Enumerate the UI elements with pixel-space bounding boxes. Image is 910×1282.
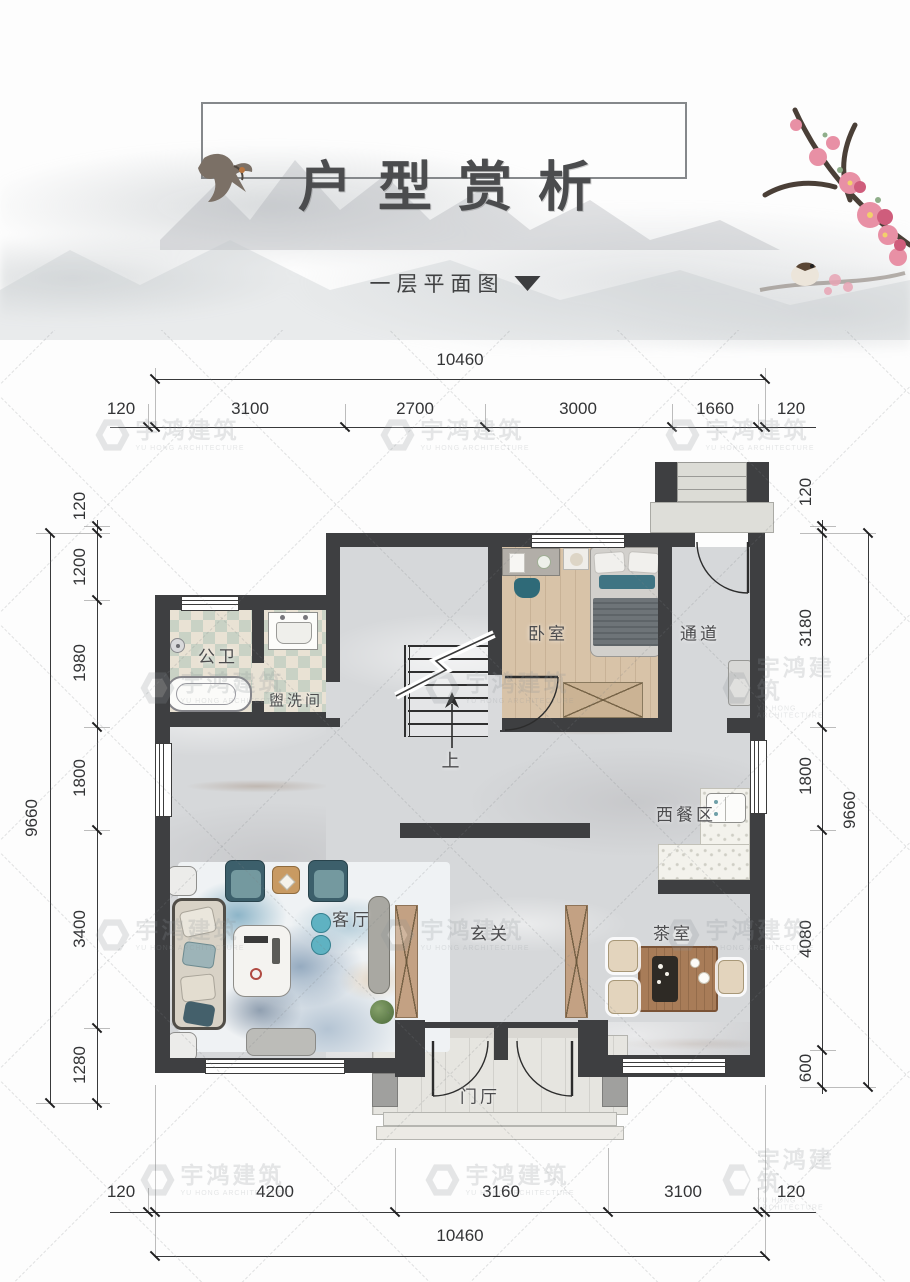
bedroom-desk	[502, 548, 560, 576]
armchair-2	[308, 860, 348, 902]
coffee-table	[233, 925, 291, 997]
watermark-cn-text: 宇鸿建筑	[420, 419, 529, 442]
opening-wash-door	[326, 682, 340, 718]
wood-side-table	[272, 866, 300, 894]
tea-bowl-2	[698, 972, 710, 984]
dim-top-total: 10460	[436, 350, 483, 370]
dim-bottom-3: 3100	[664, 1182, 702, 1202]
brand-watermark: 宇鸿建筑YU HONG ARCHITECTURE	[665, 418, 814, 452]
brand-watermark: 宇鸿建筑YU HONG ARCHITECTURE	[380, 418, 529, 452]
tea-table	[638, 946, 718, 1012]
page-subtitle: 一层平面图	[370, 268, 541, 298]
wash-sink	[268, 612, 318, 650]
opening-corridor-door	[695, 533, 748, 547]
watermark-hex-logo	[140, 1163, 174, 1197]
dim-line	[155, 379, 765, 380]
tea-chair-1	[608, 940, 638, 972]
table-card	[279, 874, 296, 891]
label-living: 客厅	[332, 906, 372, 931]
watermark-hex-logo	[95, 918, 129, 952]
label-western-dining: 西餐区	[656, 801, 716, 826]
foyer-partition-left	[395, 905, 418, 1018]
porch-step-2	[376, 1126, 624, 1140]
desk-papers	[509, 553, 525, 573]
tea-chair-3	[718, 960, 744, 994]
dim-line	[868, 533, 869, 1087]
dim-top-1: 3100	[231, 399, 269, 419]
wall-bedroom-south	[500, 718, 672, 732]
dim-line	[822, 520, 823, 1094]
dim-right-2: 1800	[796, 757, 816, 795]
dim-extension-line	[155, 1085, 156, 1258]
sofa-pillow-1	[179, 906, 218, 939]
dim-left-3: 1800	[70, 759, 90, 797]
tea-chair-2	[608, 980, 638, 1014]
shower-dot	[176, 644, 180, 648]
dim-extension-line	[800, 533, 876, 534]
window-bedroom-north	[531, 534, 625, 548]
dim-line	[155, 1256, 765, 1257]
dim-bottom-4: 120	[777, 1182, 805, 1202]
bathtub	[166, 676, 252, 712]
sink-divider	[725, 797, 726, 821]
label-bath: 公卫	[198, 643, 238, 668]
pouf-1	[311, 913, 331, 933]
ottoman	[246, 1028, 316, 1056]
wall-bath-south	[155, 712, 340, 727]
dim-bottom-2: 3160	[482, 1182, 520, 1202]
brand-watermark: 宇鸿建筑YU HONG ARCHITECTURE	[723, 1149, 848, 1212]
wall-bedroom-west	[488, 547, 502, 679]
sofa-pillow-4	[182, 1001, 215, 1028]
bathtub-basin	[176, 683, 236, 705]
coffee-table-tray	[244, 936, 268, 943]
dim-line	[110, 427, 816, 428]
opening-bedroom-door	[488, 675, 502, 730]
wall-dining-peninsula	[658, 880, 757, 894]
label-wash: 盥洗间	[269, 690, 323, 711]
watermark-en-text: YU HONG ARCHITECTURE	[705, 445, 814, 452]
pouf-2	[311, 935, 331, 955]
corridor-cabinet	[728, 660, 752, 706]
stairs	[408, 645, 488, 737]
nightstand-tray	[570, 553, 583, 566]
dim-line	[110, 1212, 816, 1213]
armchair-2-seat	[314, 870, 344, 898]
porch-pillar-left	[395, 1020, 425, 1077]
triangle-down-icon	[515, 276, 541, 291]
teacup-b	[657, 980, 661, 984]
watermark-hex-logo	[95, 418, 129, 452]
teapot	[658, 964, 663, 969]
dim-extension-line	[800, 1087, 876, 1088]
sofa	[172, 898, 226, 1030]
dim-right-0: 120	[796, 478, 816, 506]
wardrobe	[563, 682, 643, 718]
dim-top-2: 2700	[396, 399, 434, 419]
label-corridor: 通道	[680, 620, 720, 645]
dim-right-total: 9660	[840, 791, 860, 829]
dim-right-1: 3180	[796, 609, 816, 647]
dim-extension-line	[608, 1148, 609, 1214]
window-bath-north	[181, 596, 239, 611]
wall-corridor-stub	[727, 718, 765, 733]
entry-steps-north	[677, 462, 747, 502]
bedroom-chair	[514, 578, 540, 598]
dim-bottom-1: 4200	[256, 1182, 294, 1202]
watermark-hex-logo	[665, 418, 699, 452]
stair-rail-b	[409, 645, 410, 737]
teacup-a	[665, 972, 669, 976]
landing-post-right	[747, 462, 769, 502]
dim-left-total: 9660	[22, 799, 42, 837]
dim-top-5: 120	[777, 399, 805, 419]
label-foyer: 玄关	[470, 920, 510, 945]
faucet-1	[280, 615, 285, 620]
bed-runner	[599, 575, 655, 589]
coffee-table-remote	[272, 938, 280, 964]
poster-page: 户型赏析 一层平面图	[0, 0, 910, 1282]
label-entry-porch: 门厅	[460, 1083, 500, 1108]
plant	[370, 1000, 394, 1024]
dining-counter-horizontal	[658, 844, 750, 880]
bed-pillow-1	[593, 551, 625, 574]
porch-step-1	[383, 1112, 617, 1126]
opening-bath-divider	[252, 663, 264, 701]
entry-landing-north	[650, 502, 774, 533]
dim-left-1: 1200	[70, 548, 90, 586]
subtitle-text: 一层平面图	[370, 268, 505, 298]
dim-left-0: 120	[70, 492, 90, 520]
faucet-2	[303, 615, 308, 620]
watermark-en-text: YU HONG ARCHITECTURE	[420, 445, 529, 452]
nightstand	[563, 548, 589, 570]
wall-bedroom-east	[658, 547, 672, 732]
dim-top-3: 3000	[559, 399, 597, 419]
wall-mid-floating	[400, 823, 590, 838]
dim-right-4: 600	[796, 1054, 816, 1082]
page-title: 户型赏析	[298, 143, 618, 222]
window-living-south	[205, 1059, 345, 1074]
dim-extension-line	[765, 1085, 766, 1258]
label-bedroom: 卧室	[528, 620, 568, 645]
dim-left-5: 1280	[70, 1046, 90, 1084]
desk-plant	[537, 555, 551, 569]
window-living-west	[155, 743, 172, 817]
porch-planter-right	[602, 1073, 628, 1107]
watermark-hex-logo	[380, 418, 414, 452]
watermark-dashed-line	[0, 1157, 910, 1282]
watermark-dashed-line	[0, 1157, 910, 1282]
dim-extension-line	[395, 1148, 396, 1214]
watermark-hex-logo	[723, 1163, 751, 1197]
watermark-hex-logo	[425, 1163, 459, 1197]
landing-post-left	[655, 462, 677, 502]
stair-rail-a	[404, 645, 406, 737]
brand-watermark: 宇鸿建筑YU HONG ARCHITECTURE	[95, 418, 244, 452]
dim-left-4: 3400	[70, 910, 90, 948]
bed	[590, 547, 662, 657]
armchair-1	[225, 860, 265, 902]
window-tea-south	[622, 1058, 726, 1074]
dim-top-0: 120	[107, 399, 135, 419]
window-dining-east	[750, 740, 767, 814]
label-tea-room: 茶室	[653, 920, 693, 945]
door-center-post	[494, 1022, 508, 1060]
wash-basin	[276, 622, 312, 644]
dim-top-4: 1660	[696, 399, 734, 419]
sofa-pillow-2	[181, 941, 216, 969]
foyer-partition-right	[565, 905, 588, 1018]
label-stairs-up: 上	[442, 747, 463, 773]
dim-bottom-total: 10460	[436, 1226, 483, 1246]
dim-left-2: 1980	[70, 644, 90, 682]
porch-planter-left	[372, 1073, 398, 1107]
armchair-1-seat	[231, 870, 261, 898]
dim-right-3: 4080	[796, 920, 816, 958]
side-table-top	[167, 866, 197, 896]
dim-bottom-0: 120	[107, 1182, 135, 1202]
dim-line	[97, 520, 98, 1110]
tea-tray	[652, 956, 678, 1002]
wall-left	[155, 595, 170, 1073]
tea-bowl-1	[690, 958, 700, 968]
sofa-pillow-3	[180, 973, 217, 1002]
watermark-en-text: YU HONG ARCHITECTURE	[757, 706, 848, 720]
bed-blanket	[593, 598, 659, 646]
dim-line	[50, 533, 51, 1103]
watermark-en-text: YU HONG ARCHITECTURE	[135, 445, 244, 452]
coffee-table-dish	[250, 968, 262, 980]
watermark-cn-text: 宇鸿建筑	[757, 657, 848, 703]
shower-head	[170, 638, 185, 653]
plum-blossom-branch	[700, 95, 910, 330]
porch-pillar-right	[578, 1020, 608, 1077]
bed-pillow-2	[627, 551, 659, 574]
